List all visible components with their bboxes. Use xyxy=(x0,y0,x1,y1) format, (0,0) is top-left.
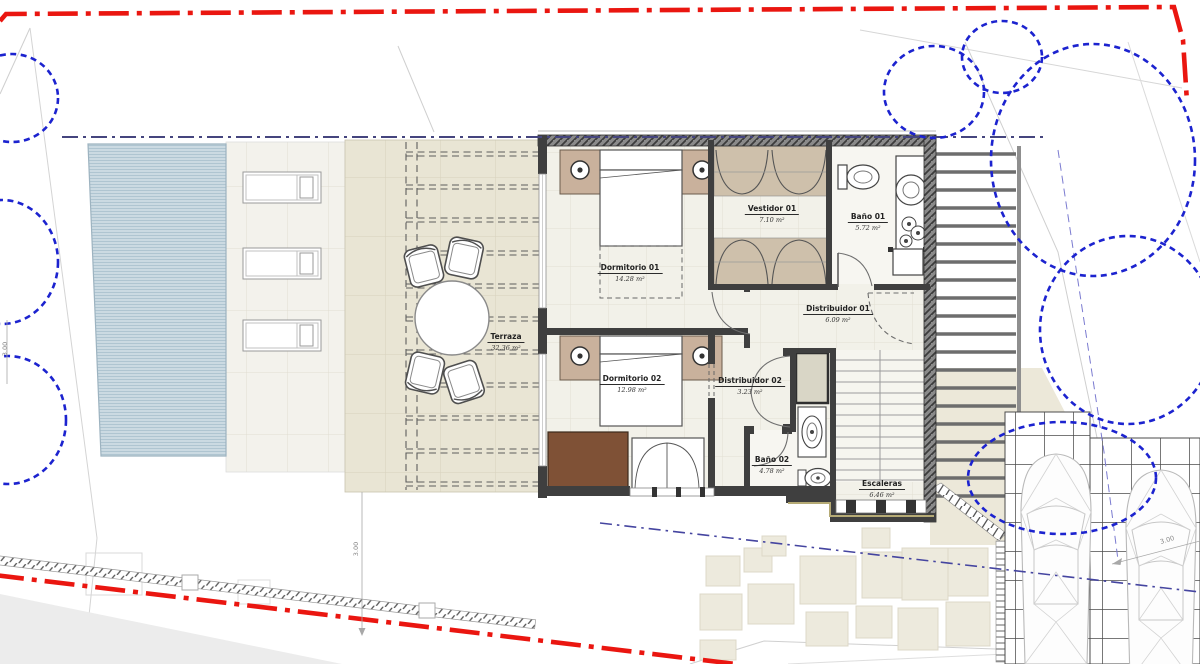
room-label-bano-01: Baño 01 5.72 m² xyxy=(848,212,888,232)
wardrobe-brown xyxy=(548,432,628,488)
room-area: 6.09 m² xyxy=(803,316,873,324)
tree-canopy xyxy=(884,46,984,138)
staircase xyxy=(836,350,924,482)
car xyxy=(1126,470,1196,664)
car xyxy=(1021,454,1091,664)
tree-canopy xyxy=(991,44,1195,276)
room-name: Distribuidor 01 xyxy=(803,304,873,315)
room-area: 5.72 m² xyxy=(848,224,888,232)
tree-canopy xyxy=(962,21,1042,93)
room-label-bano-02: Baño 02 4.78 m² xyxy=(752,455,792,475)
toilet xyxy=(847,165,879,189)
room-area: 4.78 m² xyxy=(752,467,792,475)
wardrobe xyxy=(632,438,704,490)
slope-shading xyxy=(0,594,342,664)
room-area: 6.46 m² xyxy=(859,491,905,499)
tree-canopy xyxy=(0,200,58,324)
fence-post xyxy=(419,603,435,618)
sun-lounger xyxy=(243,320,321,351)
room-label-dormitorio-02: Dormitorio 02 12.98 m² xyxy=(600,374,665,394)
bed xyxy=(600,170,682,246)
tree-canopy xyxy=(1040,236,1200,424)
terrace xyxy=(345,140,545,492)
swimming-pool xyxy=(88,144,226,456)
tree-canopy xyxy=(0,54,58,142)
retaining-wall-vertical xyxy=(996,541,1005,662)
room-label-vestidor-01: Vestidor 01 7.10 m² xyxy=(745,204,799,224)
room-area: 14.28 m² xyxy=(598,275,663,283)
room-name: Vestidor 01 xyxy=(745,204,799,215)
round-table xyxy=(415,281,489,355)
room-label-dormitorio-01: Dormitorio 01 14.28 m² xyxy=(598,263,663,283)
stepping-pavers xyxy=(700,528,990,660)
bed-headboard xyxy=(600,336,682,354)
fence-post xyxy=(182,575,198,590)
sun-lounger xyxy=(243,172,321,203)
room-name: Escaleras xyxy=(859,479,905,490)
room-area: 32.36 m² xyxy=(487,344,524,352)
room-name: Baño 02 xyxy=(752,455,792,466)
room-name: Baño 01 xyxy=(848,212,888,223)
terrace-chair xyxy=(404,351,446,396)
dimension-label-terrace: 3.00 xyxy=(352,542,360,556)
room-name: Dormitorio 01 xyxy=(598,263,663,274)
room-area: 7.10 m² xyxy=(745,216,799,224)
site-plan-page: Dormitorio 01 14.28 m² Vestidor 01 7.10 … xyxy=(0,0,1200,664)
room-name: Dormitorio 02 xyxy=(600,374,665,385)
tree-canopy xyxy=(0,356,66,484)
shower xyxy=(796,353,828,403)
sun-lounger xyxy=(243,248,321,279)
site-plan-canvas xyxy=(0,0,1200,664)
room-name: Distribuidor 02 xyxy=(715,376,785,387)
terrace-chair xyxy=(443,236,484,280)
room-name: Terraza xyxy=(487,332,524,343)
room-label-terraza: Terraza 32.36 m² xyxy=(487,332,524,352)
room-label-distribuidor-02: Distribuidor 02 3.23 m² xyxy=(715,376,785,396)
room-area: 12.98 m² xyxy=(600,386,665,394)
sink xyxy=(896,175,926,205)
exterior-wall-right xyxy=(924,135,936,522)
room-label-escaleras: Escaleras 6.46 m² xyxy=(859,479,905,499)
pool-area xyxy=(88,142,345,472)
room-label-distribuidor-01: Distribuidor 01 6.09 m² xyxy=(803,304,873,324)
boundary-red-top xyxy=(0,7,1187,102)
bed-headboard xyxy=(600,150,682,170)
building xyxy=(538,131,936,522)
dimension-label-left: 3.00 xyxy=(1,342,9,356)
room-area: 3.23 m² xyxy=(715,388,785,396)
shower xyxy=(893,249,923,275)
